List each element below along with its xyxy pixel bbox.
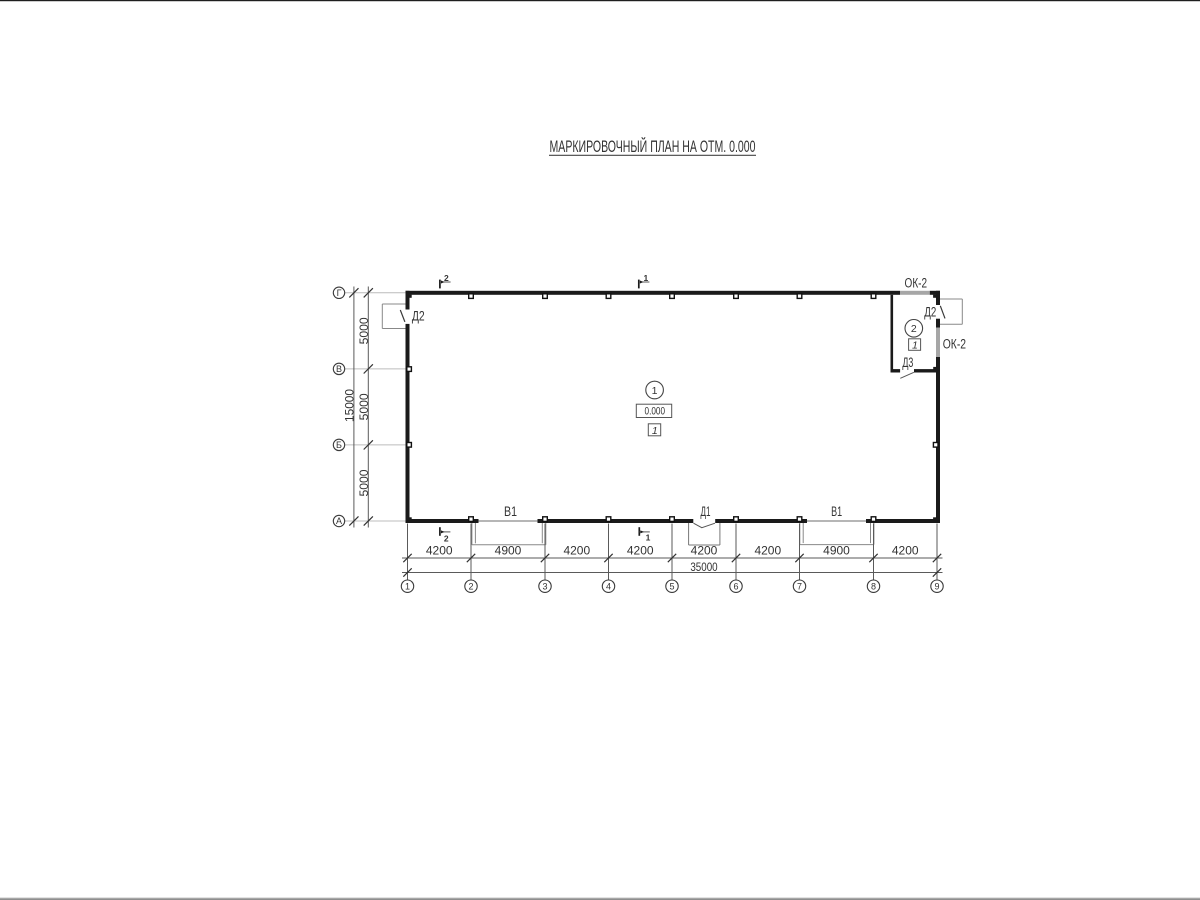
svg-text:Г: Г xyxy=(337,288,342,298)
svg-text:1: 1 xyxy=(644,273,649,283)
svg-text:МАРКИРОВОЧНЫЙ ПЛАН НА ОТМ. 0.0: МАРКИРОВОЧНЫЙ ПЛАН НА ОТМ. 0.000 xyxy=(550,137,756,156)
svg-text:3: 3 xyxy=(542,582,547,592)
svg-text:Б: Б xyxy=(336,440,342,450)
svg-text:1: 1 xyxy=(652,385,658,397)
svg-text:4200: 4200 xyxy=(691,544,718,558)
svg-text:5000: 5000 xyxy=(357,469,371,496)
svg-text:ОК-2: ОК-2 xyxy=(905,275,928,290)
svg-text:7: 7 xyxy=(797,582,802,592)
svg-text:Д1: Д1 xyxy=(701,504,711,519)
svg-text:4200: 4200 xyxy=(627,544,654,558)
svg-text:Д3: Д3 xyxy=(902,355,913,370)
svg-text:0.000: 0.000 xyxy=(645,406,666,418)
svg-text:В1: В1 xyxy=(831,504,842,519)
svg-text:1: 1 xyxy=(405,582,410,592)
svg-text:4900: 4900 xyxy=(823,544,850,558)
svg-text:4900: 4900 xyxy=(495,544,522,558)
svg-text:35000: 35000 xyxy=(690,560,718,574)
svg-text:Д2: Д2 xyxy=(924,305,936,320)
svg-text:2: 2 xyxy=(444,273,449,283)
svg-text:2: 2 xyxy=(468,582,473,592)
svg-text:4200: 4200 xyxy=(892,544,919,558)
svg-text:ОК-2: ОК-2 xyxy=(943,337,966,352)
svg-text:4200: 4200 xyxy=(426,544,453,558)
svg-text:В: В xyxy=(336,364,342,374)
svg-text:6: 6 xyxy=(733,582,738,592)
svg-text:4200: 4200 xyxy=(563,544,590,558)
svg-text:8: 8 xyxy=(871,582,876,592)
svg-text:2: 2 xyxy=(444,533,449,543)
svg-text:1: 1 xyxy=(652,425,658,437)
svg-text:9: 9 xyxy=(934,582,939,592)
svg-text:2: 2 xyxy=(911,323,917,335)
svg-text:1: 1 xyxy=(646,532,651,542)
svg-text:5000: 5000 xyxy=(357,393,371,420)
svg-text:5: 5 xyxy=(669,582,674,592)
svg-text:1: 1 xyxy=(912,340,918,352)
svg-text:4200: 4200 xyxy=(754,544,781,558)
svg-text:4: 4 xyxy=(606,582,611,592)
svg-text:Д2: Д2 xyxy=(412,309,425,324)
svg-text:А: А xyxy=(336,516,342,526)
svg-text:15000: 15000 xyxy=(343,389,357,422)
svg-text:5000: 5000 xyxy=(357,317,371,344)
svg-text:В1: В1 xyxy=(504,504,517,519)
